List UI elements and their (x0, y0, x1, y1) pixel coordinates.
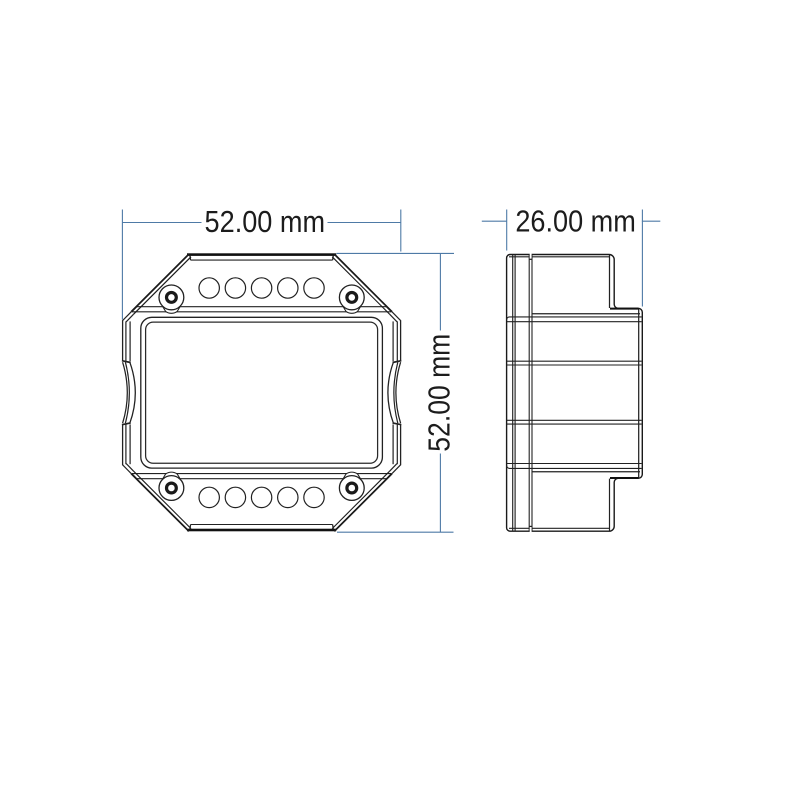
svg-text:52.00 mm: 52.00 mm (423, 334, 457, 452)
svg-text:52.00 mm: 52.00 mm (205, 205, 326, 239)
svg-text:26.00 mm: 26.00 mm (515, 205, 636, 239)
